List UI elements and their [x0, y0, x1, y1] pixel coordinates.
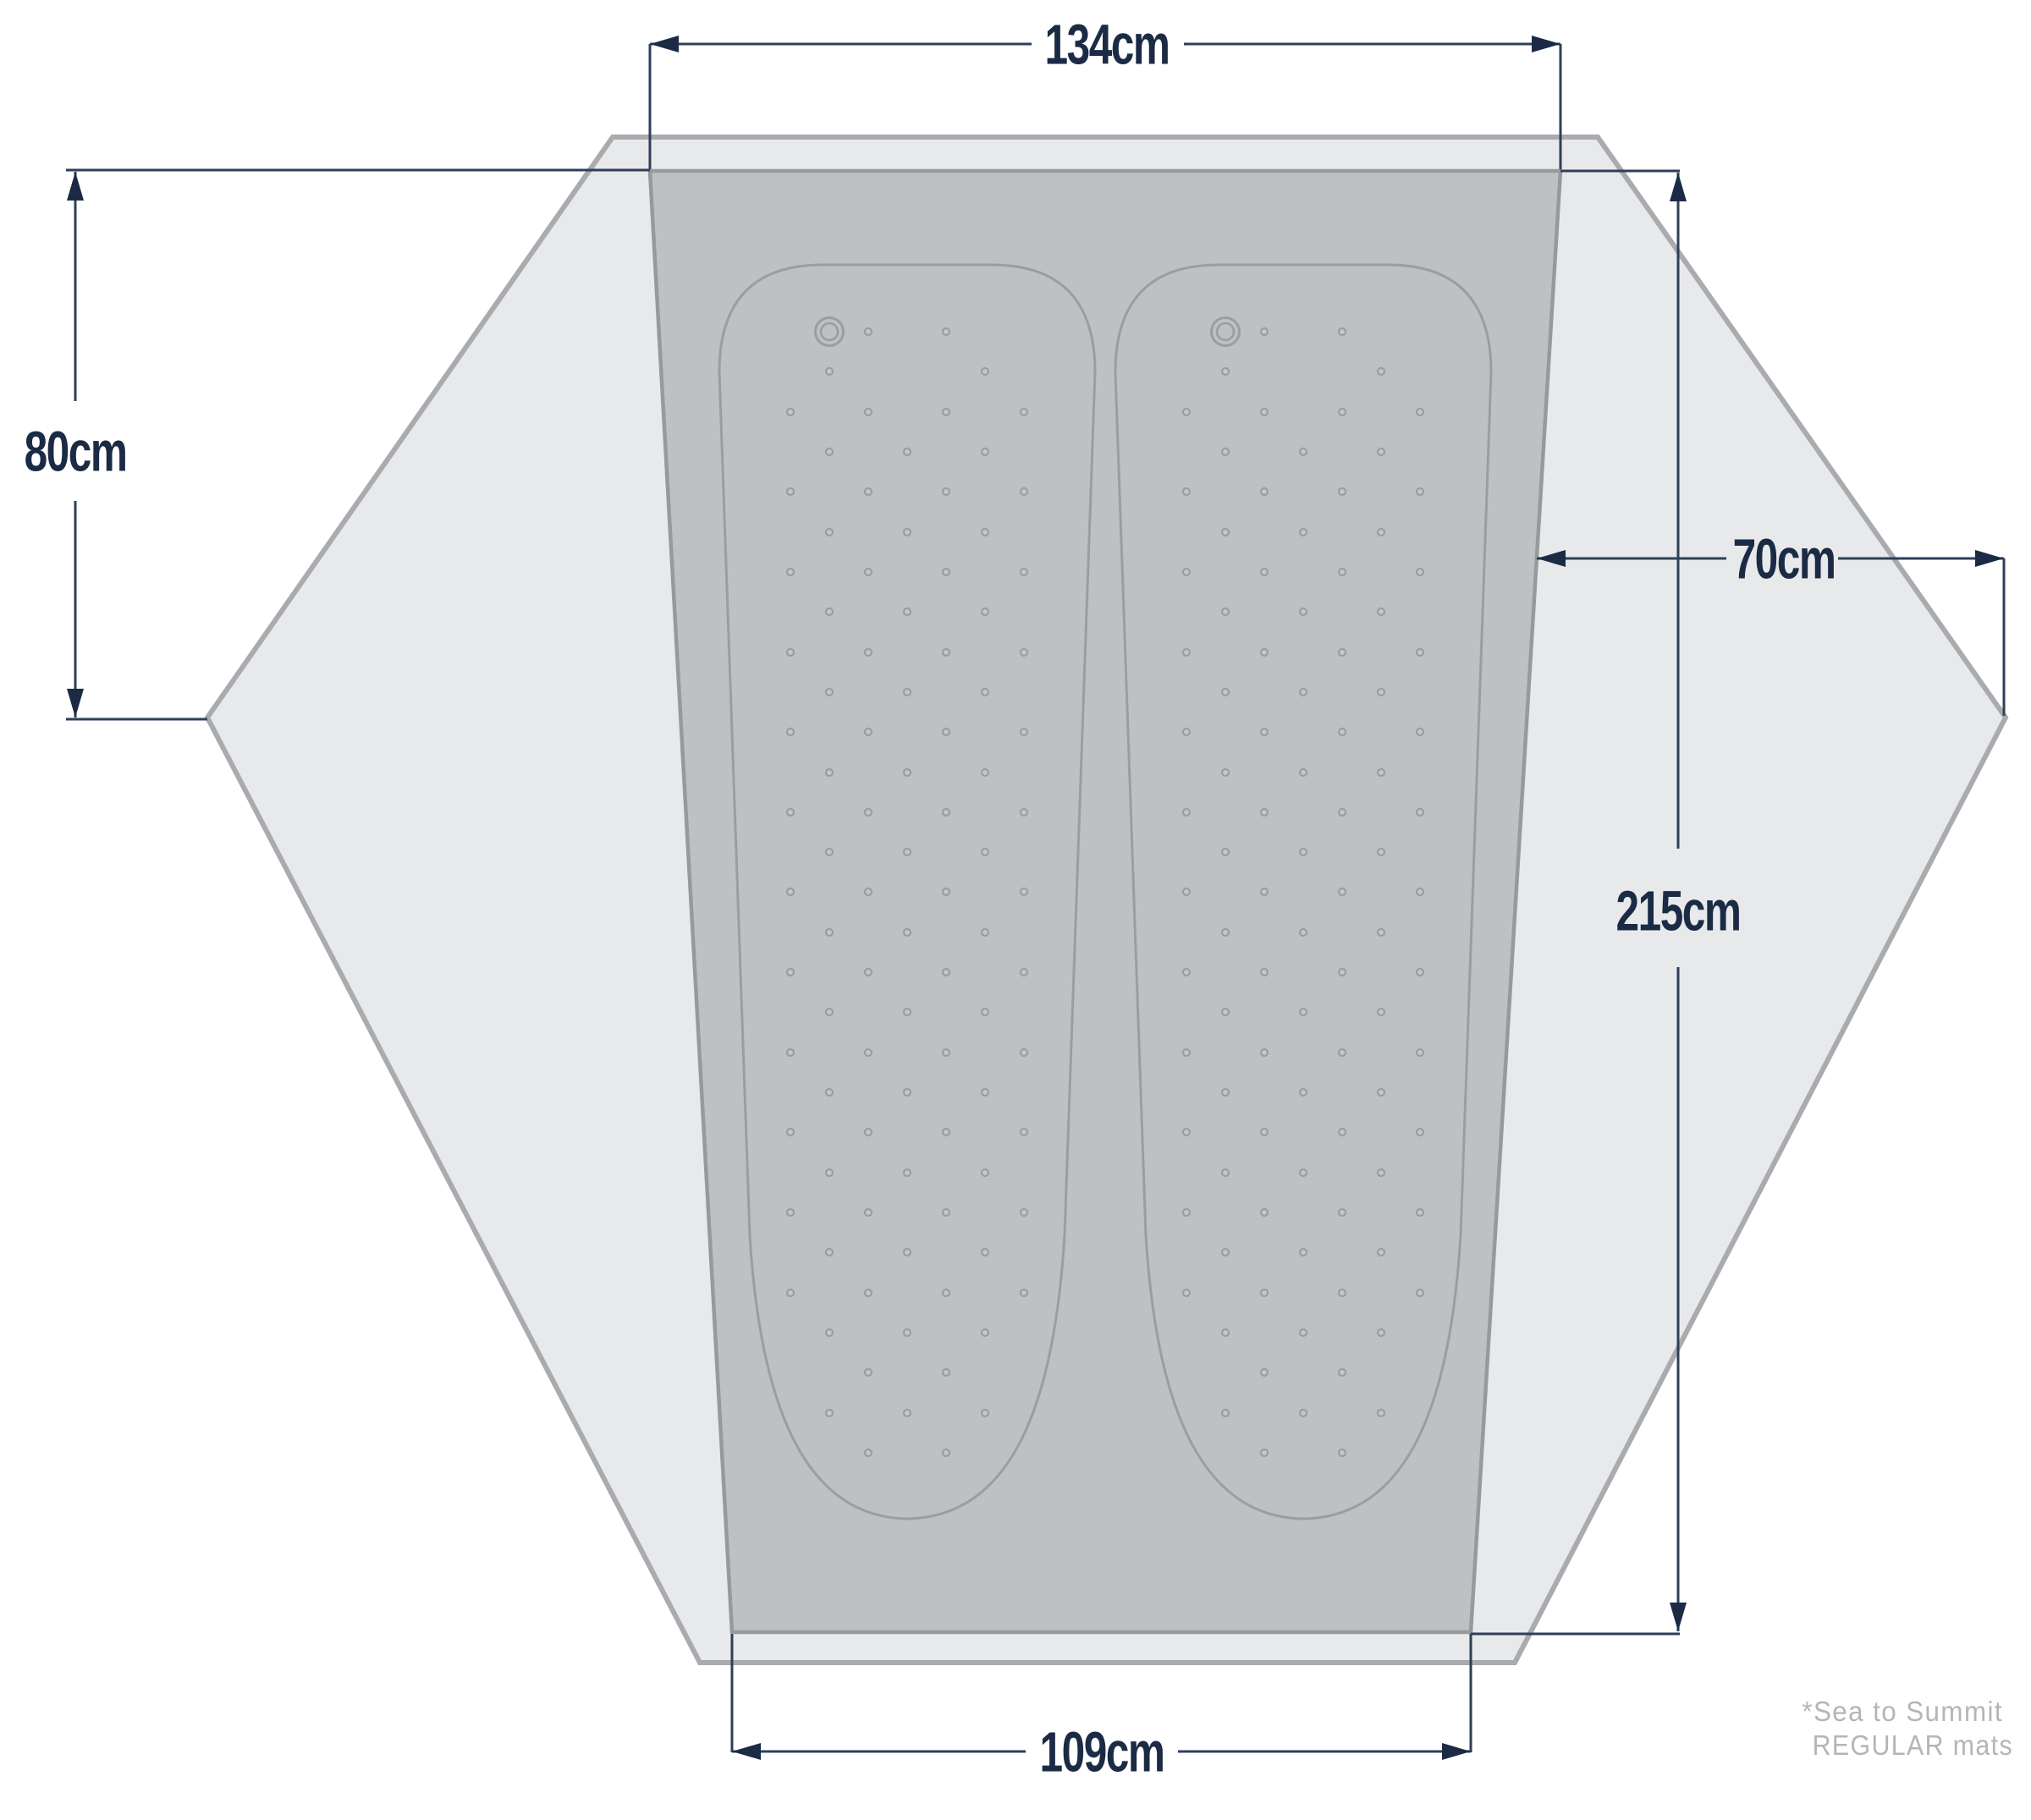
svg-text:134cm: 134cm: [1045, 14, 1170, 76]
svg-text:70cm: 70cm: [1733, 528, 1836, 591]
svg-text:109cm: 109cm: [1040, 1721, 1164, 1784]
svg-text:215cm: 215cm: [1616, 880, 1741, 943]
svg-text:80cm: 80cm: [25, 421, 127, 483]
svg-text:*Sea to Summit: *Sea to Summit: [1802, 1696, 2003, 1727]
svg-text:REGULAR mats: REGULAR mats: [1813, 1729, 2013, 1761]
